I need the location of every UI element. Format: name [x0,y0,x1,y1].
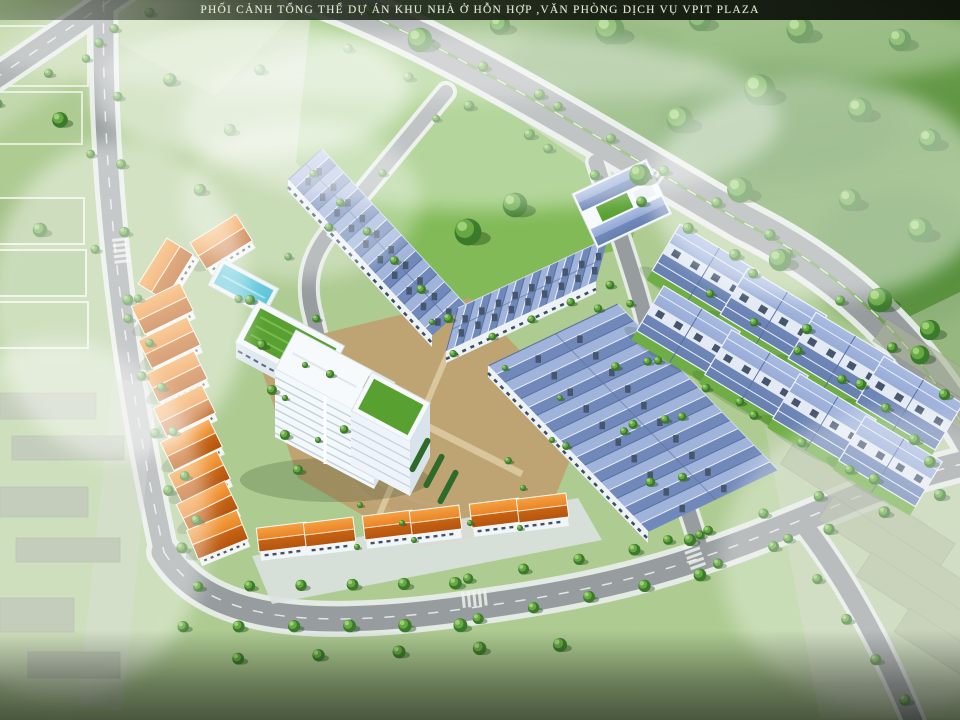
site-plan-scene [0,0,960,720]
page-title: PHỐI CẢNH TỔNG THỂ DỰ ÁN KHU NHÀ Ở HỖN H… [200,4,759,16]
title-bar: PHỐI CẢNH TỔNG THỂ DỰ ÁN KHU NHÀ Ở HỖN H… [0,0,960,20]
architectural-rendering: PHỐI CẢNH TỔNG THỂ DỰ ÁN KHU NHÀ Ở HỖN H… [0,0,960,720]
